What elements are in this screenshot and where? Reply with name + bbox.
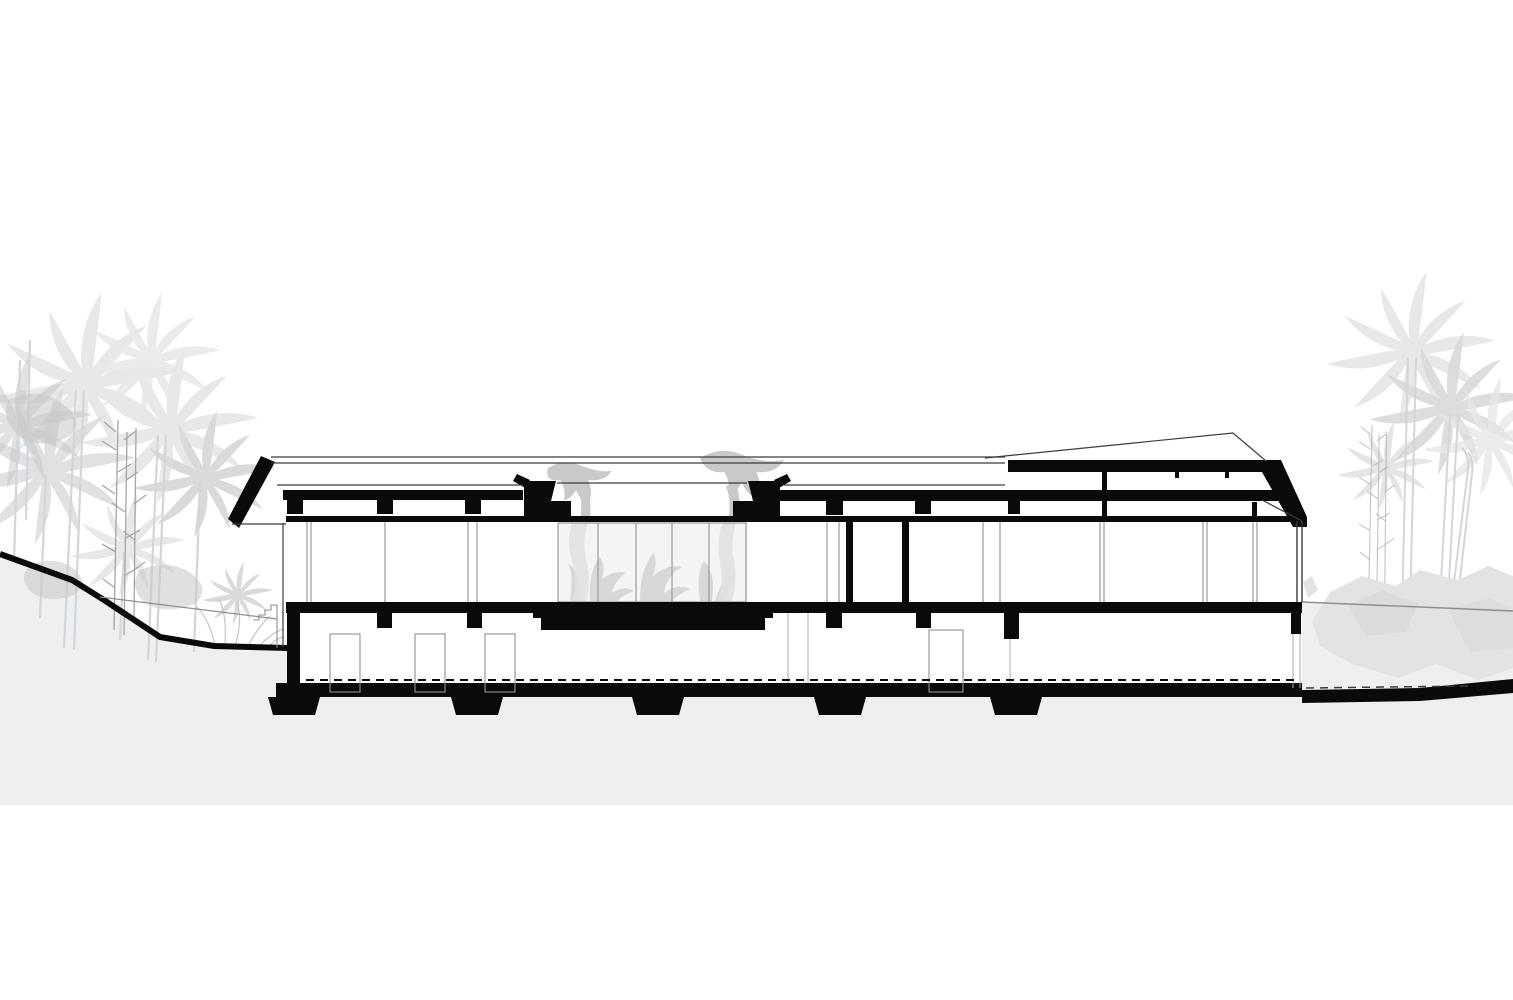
clerestory-roof-slope-line	[985, 433, 1266, 461]
terrain-lines	[0, 554, 1513, 648]
foundation-slab	[276, 683, 1302, 697]
ground-base-fill	[0, 695, 1513, 805]
glass-atrium	[558, 523, 747, 603]
basement-doors	[330, 630, 963, 692]
clerestory-roof-slab	[1008, 460, 1268, 472]
palm-fronds	[1327, 271, 1513, 510]
vegetation-right	[1303, 271, 1513, 680]
interior-walls	[846, 518, 909, 603]
door	[929, 630, 963, 692]
palm-tree	[202, 561, 273, 625]
architectural-section-drawing	[0, 0, 1513, 1000]
basement-partitions	[788, 613, 1300, 688]
right-wall-lines	[1297, 521, 1302, 602]
floor-slab	[286, 602, 1302, 613]
planter-pedestal	[533, 609, 773, 630]
ceiling-slab	[286, 516, 1300, 522]
floor-beams	[377, 613, 1301, 639]
roof-beam-left	[283, 490, 523, 500]
roof-purlins	[287, 500, 1020, 515]
section-canvas	[0, 0, 1513, 1000]
roof-beam-right	[770, 490, 1282, 501]
glass-overlay	[558, 523, 747, 603]
wall-lines	[307, 522, 1257, 602]
